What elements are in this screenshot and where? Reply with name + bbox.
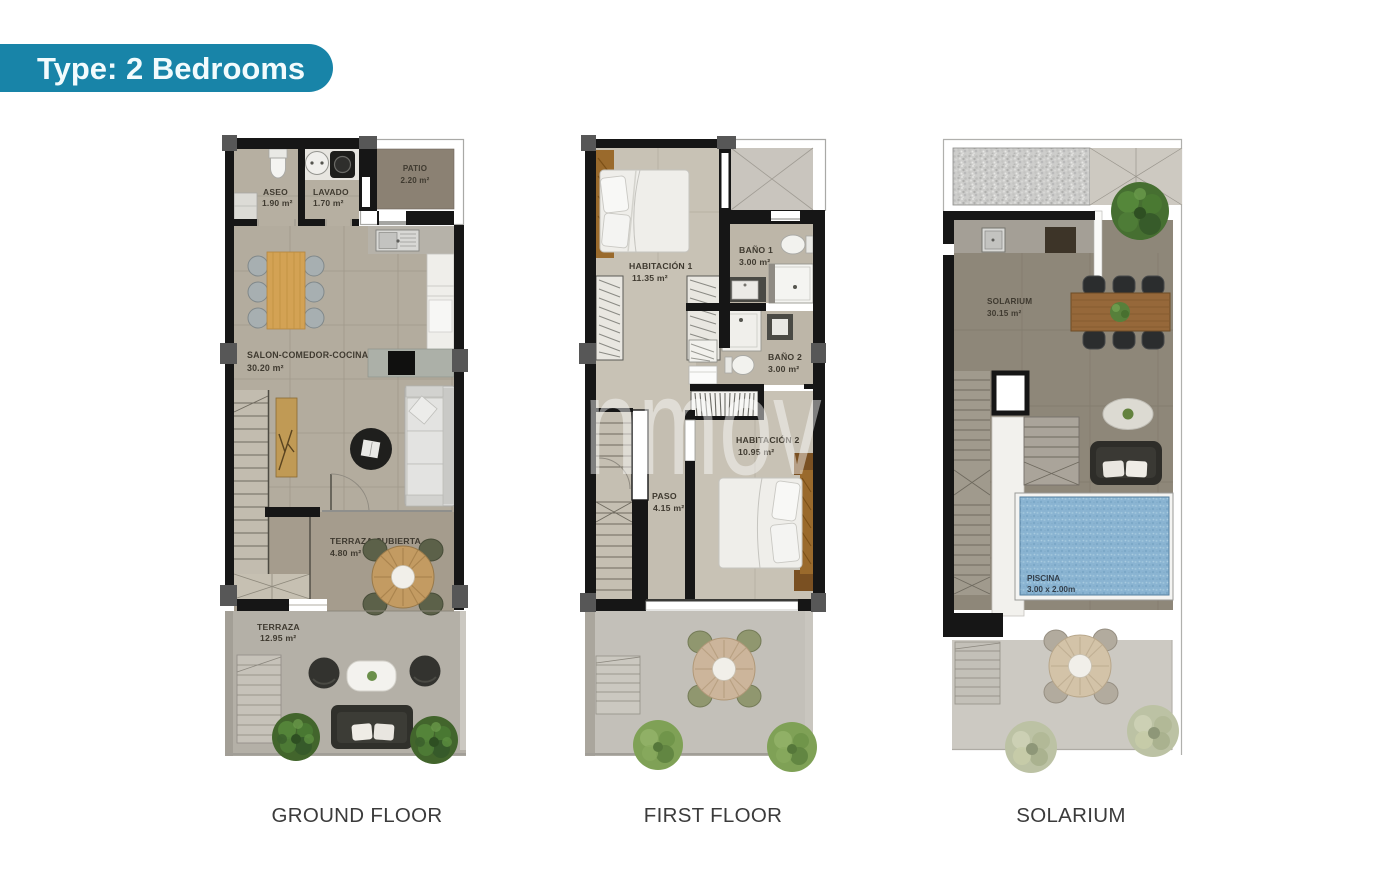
svg-text:SALON-COMEDOR-COCINA: SALON-COMEDOR-COCINA (247, 350, 369, 360)
svg-text:nmovar: nmovar (584, 347, 908, 504)
svg-text:PATIO: PATIO (403, 164, 427, 173)
svg-text:4.15 m²: 4.15 m² (653, 503, 684, 513)
svg-text:TERRAZA: TERRAZA (257, 622, 300, 632)
svg-text:1.70 m²: 1.70 m² (313, 198, 344, 208)
svg-text:GROUND FLOOR: GROUND FLOOR (271, 804, 442, 827)
svg-text:4.80 m²: 4.80 m² (330, 548, 361, 558)
svg-text:SOLARIUM: SOLARIUM (987, 297, 1032, 306)
svg-text:FIRST FLOOR: FIRST FLOOR (644, 804, 782, 827)
svg-text:PISCINA: PISCINA (1027, 574, 1060, 583)
svg-text:30.15 m²: 30.15 m² (987, 309, 1021, 318)
svg-text:3.00 m²: 3.00 m² (739, 257, 770, 267)
svg-text:2.20 m²: 2.20 m² (401, 176, 430, 185)
svg-text:Type: 2 Bedrooms: Type: 2 Bedrooms (37, 51, 305, 86)
svg-text:12.95 m²: 12.95 m² (260, 633, 296, 643)
svg-text:ASEO: ASEO (263, 187, 288, 197)
svg-text:HABITACIÓN 1: HABITACIÓN 1 (629, 260, 693, 271)
svg-text:BAÑO 1: BAÑO 1 (739, 245, 773, 255)
svg-text:1.90 m²: 1.90 m² (262, 198, 293, 208)
svg-text:11.35 m²: 11.35 m² (632, 273, 668, 283)
svg-text:30.20 m²: 30.20 m² (247, 363, 284, 373)
svg-text:SOLARIUM: SOLARIUM (1016, 804, 1125, 827)
svg-text:LAVADO: LAVADO (313, 187, 349, 197)
svg-text:3.00 x 2.00m: 3.00 x 2.00m (1027, 585, 1075, 594)
